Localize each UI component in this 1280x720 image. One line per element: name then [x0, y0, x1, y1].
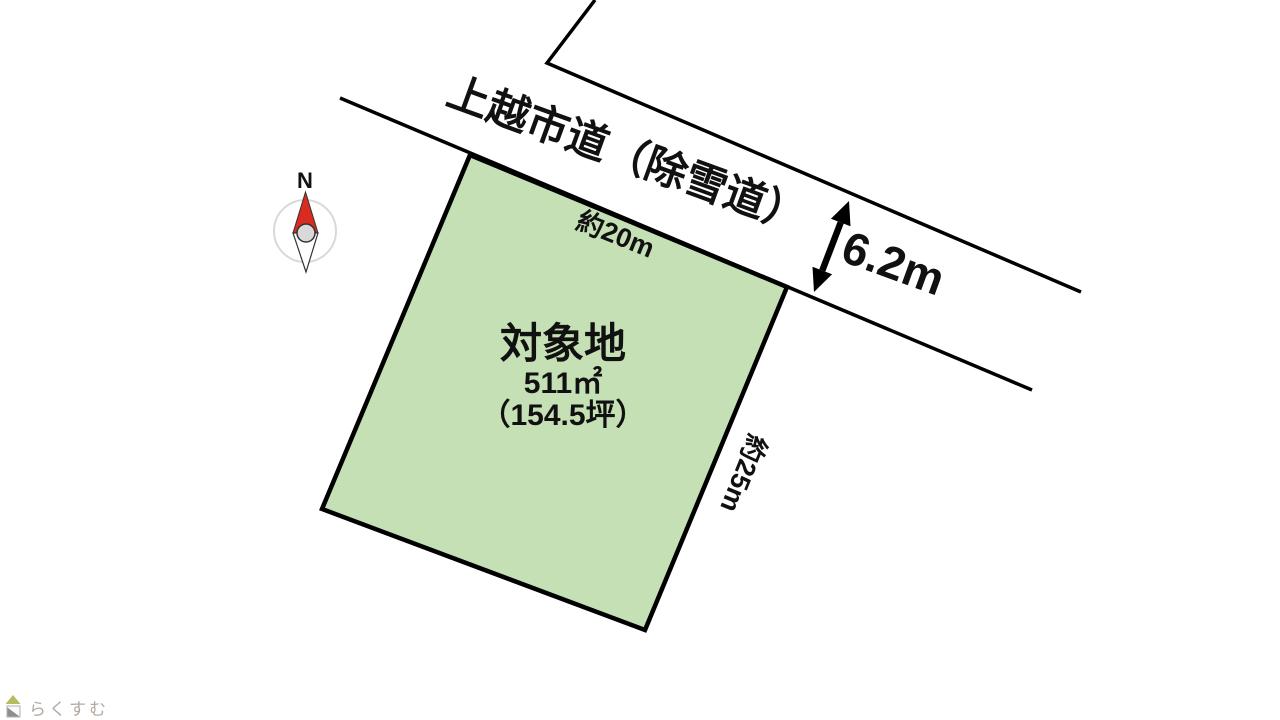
plot-area-m2-label: 511㎡: [524, 366, 602, 400]
house-icon: [6, 695, 21, 717]
footer-logo: らくすむ: [6, 695, 110, 719]
site-plan-diagram: 上越市道（除雪道） 6.2m 約20m 約25m 対象地 511㎡ （154.5…: [0, 0, 1280, 720]
plot-area-tsubo-label: （154.5坪）: [480, 398, 645, 432]
footer-logo-text: らくすむ: [29, 700, 109, 719]
road-width-label: 6.2m: [835, 221, 951, 306]
compass-north-label: N: [297, 168, 313, 193]
site-plan-page: 上越市道（除雪道） 6.2m 約20m 約25m 対象地 511㎡ （154.5…: [0, 0, 1280, 720]
compass-pivot: [297, 224, 315, 242]
compass: N: [274, 168, 336, 272]
plot-title-label: 対象地: [500, 320, 626, 367]
house-roof-icon: [6, 695, 21, 704]
